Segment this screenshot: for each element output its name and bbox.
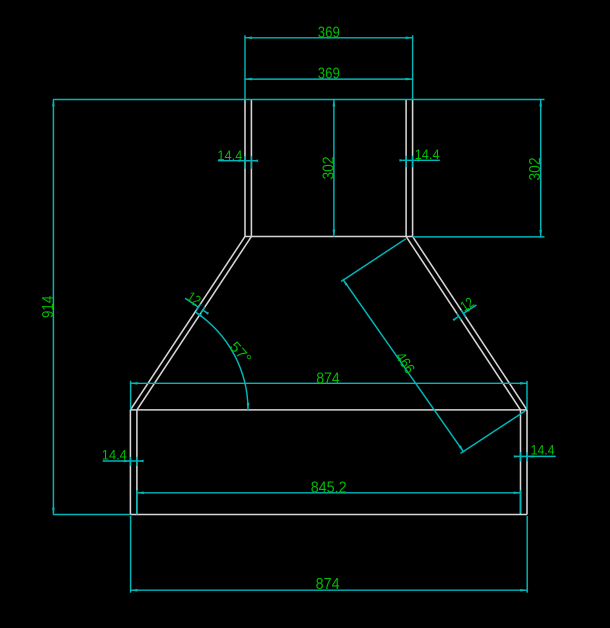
svg-text:874: 874 — [316, 576, 340, 593]
svg-text:14.4: 14.4 — [102, 448, 127, 463]
svg-text:874: 874 — [316, 370, 340, 387]
svg-text:302: 302 — [321, 157, 338, 180]
svg-text:369: 369 — [318, 24, 340, 41]
svg-text:914: 914 — [40, 295, 57, 318]
svg-text:14.4: 14.4 — [531, 442, 555, 457]
svg-text:369: 369 — [318, 66, 340, 83]
svg-text:845.2: 845.2 — [311, 480, 347, 497]
svg-text:14.4: 14.4 — [217, 148, 242, 163]
svg-text:302: 302 — [527, 158, 544, 181]
svg-text:14.4: 14.4 — [415, 147, 440, 162]
